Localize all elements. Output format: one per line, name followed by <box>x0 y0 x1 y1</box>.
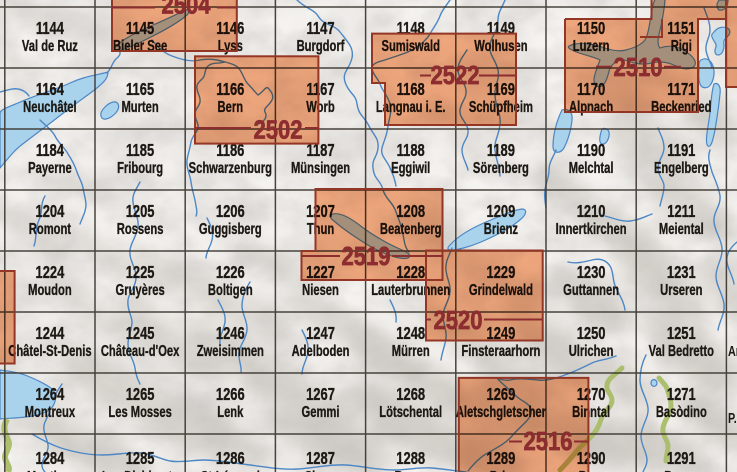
svg-text:Sörenberg: Sörenberg <box>473 158 529 177</box>
svg-text:2520: 2520 <box>433 306 482 335</box>
svg-text:Ulrichen: Ulrichen <box>569 341 614 360</box>
svg-text:Brienz: Brienz <box>484 219 518 238</box>
svg-text:1284: 1284 <box>35 449 64 469</box>
svg-text:Val de Ruz: Val de Ruz <box>22 36 78 55</box>
svg-text:2519: 2519 <box>341 242 390 271</box>
svg-text:1287: 1287 <box>306 449 335 469</box>
svg-text:1286: 1286 <box>216 449 245 469</box>
svg-text:Val Bedretto: Val Bedretto <box>649 341 714 360</box>
svg-text:Château-d'Oex: Château-d'Oex <box>101 341 180 360</box>
svg-text:Mürren: Mürren <box>392 341 430 360</box>
svg-text:1285: 1285 <box>126 449 155 469</box>
svg-text:P.: P. <box>728 409 737 426</box>
svg-text:Rossens: Rossens <box>117 219 164 238</box>
svg-text:Moudon: Moudon <box>28 280 72 299</box>
svg-text:Lenk: Lenk <box>217 402 243 421</box>
svg-text:Am: Am <box>728 342 737 359</box>
svg-text:Monthey: Monthey <box>27 467 73 472</box>
svg-text:Innertkirchen: Innertkirchen <box>556 219 627 238</box>
svg-text:Murten: Murten <box>121 97 158 116</box>
svg-text:Les Mosses: Les Mosses <box>108 402 172 421</box>
svg-text:2522: 2522 <box>430 61 479 90</box>
svg-text:Neuchâtel: Neuchâtel <box>23 97 76 116</box>
svg-text:Meiental: Meiental <box>659 219 704 238</box>
svg-text:Montreux: Montreux <box>25 402 76 421</box>
svg-text:Sierre: Sierre <box>305 467 337 472</box>
svg-text:Raron: Raron <box>395 467 427 472</box>
svg-text:Basòdino: Basòdino <box>656 402 707 421</box>
svg-text:Payerne: Payerne <box>28 158 72 177</box>
svg-text:Adelboden: Adelboden <box>292 341 350 360</box>
svg-text:Engelberg: Engelberg <box>654 158 709 177</box>
svg-text:Niesen: Niesen <box>302 280 339 299</box>
svg-text:1291: 1291 <box>667 449 696 469</box>
svg-text:2516: 2516 <box>523 427 572 456</box>
svg-text:Gemmi: Gemmi <box>302 402 340 421</box>
svg-text:Boltigen: Boltigen <box>208 280 253 299</box>
svg-text:1288: 1288 <box>396 449 425 469</box>
svg-text:Guggisberg: Guggisberg <box>199 219 262 238</box>
svg-text:Burgdorf: Burgdorf <box>297 36 345 55</box>
svg-text:Châtel-St-Denis: Châtel-St-Denis <box>8 341 92 360</box>
svg-text:St-Léonard: St-Léonard <box>201 467 260 472</box>
svg-text:Melchtal: Melchtal <box>569 158 614 177</box>
svg-text:Bosco: Bosco <box>664 467 698 472</box>
svg-text:Les Diablerets: Les Diablerets <box>102 467 179 472</box>
svg-text:Romont: Romont <box>29 219 72 238</box>
svg-text:Lötschental: Lötschental <box>379 402 442 421</box>
svg-text:2502: 2502 <box>253 116 302 145</box>
svg-text:2504: 2504 <box>161 0 211 20</box>
svg-text:Eggiwil: Eggiwil <box>391 158 430 177</box>
svg-text:2510: 2510 <box>613 53 662 82</box>
svg-text:Finsteraarhorn: Finsteraarhorn <box>461 341 540 360</box>
svg-text:Fribourg: Fribourg <box>117 158 163 177</box>
svg-text:Schwarzenburg: Schwarzenburg <box>189 158 272 177</box>
svg-text:Gruyères: Gruyères <box>116 280 165 299</box>
svg-text:Urseren: Urseren <box>660 280 702 299</box>
svg-text:Guttannen: Guttannen <box>563 280 619 299</box>
svg-text:Münsingen: Münsingen <box>291 158 350 177</box>
svg-text:Zweisimmen: Zweisimmen <box>197 341 264 360</box>
